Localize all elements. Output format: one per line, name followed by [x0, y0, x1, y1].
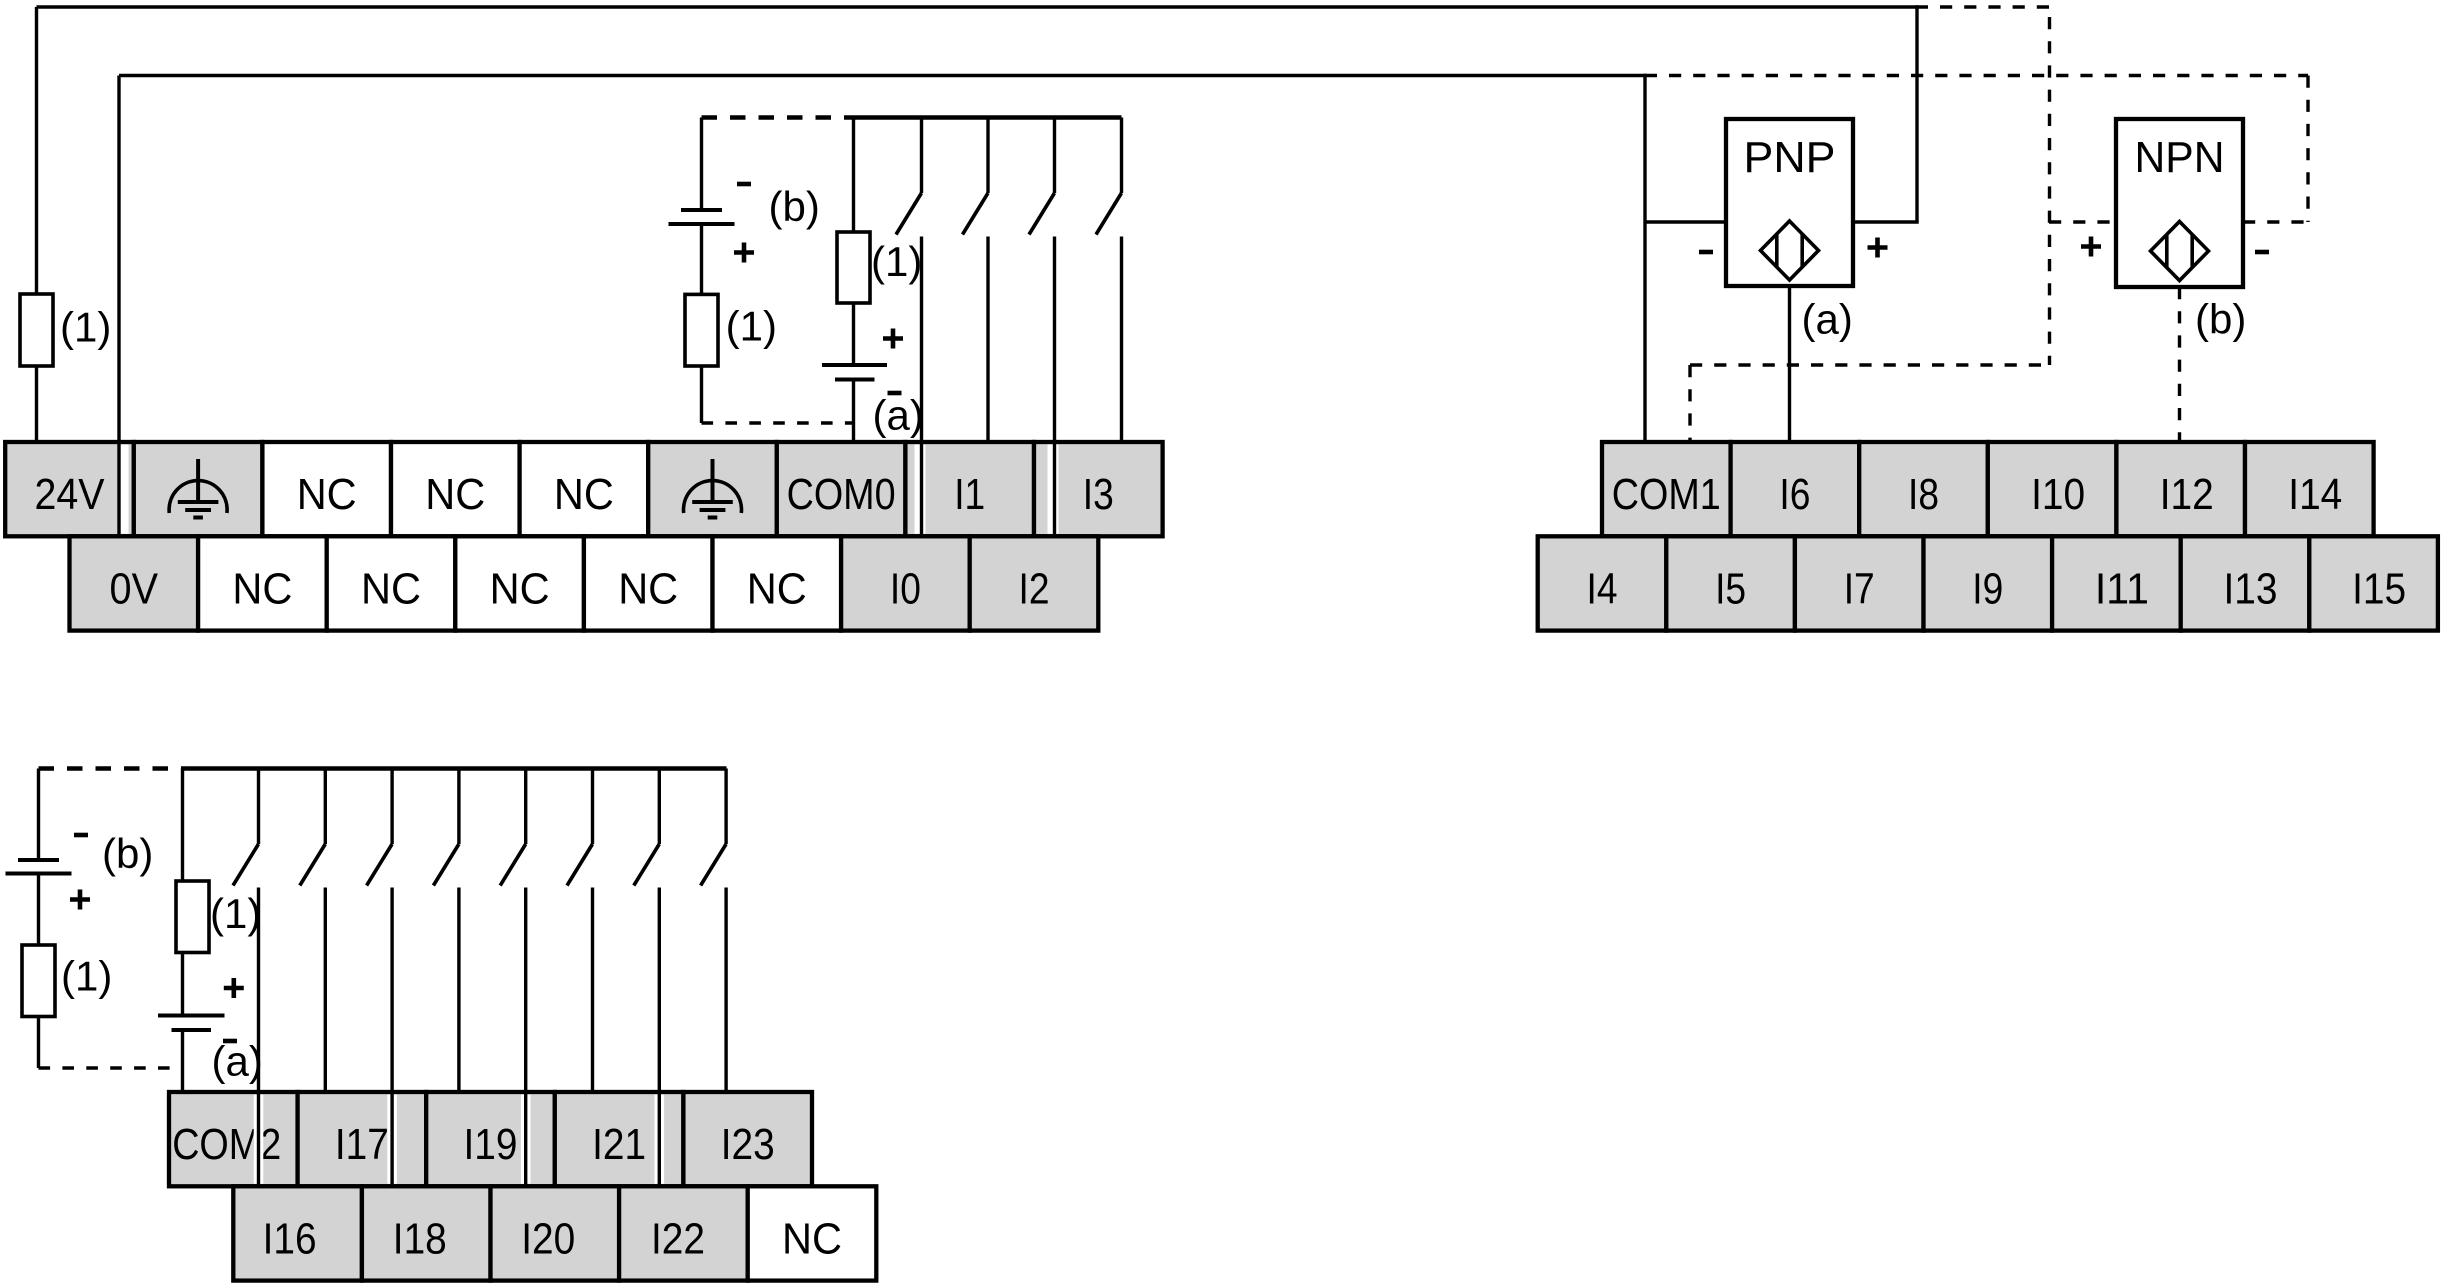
svg-text:NC: NC — [747, 565, 807, 613]
svg-text:I20: I20 — [521, 1216, 575, 1264]
svg-text:0V: 0V — [110, 565, 159, 613]
svg-text:I14: I14 — [2288, 471, 2342, 519]
svg-text:(a): (a) — [1802, 296, 1853, 343]
svg-text:(1): (1) — [726, 303, 777, 350]
svg-text:I21: I21 — [592, 1121, 646, 1169]
svg-text:I22: I22 — [651, 1216, 705, 1264]
svg-text:PNP: PNP — [1744, 133, 1836, 182]
svg-text:I13: I13 — [2224, 565, 2278, 613]
svg-text:NC: NC — [232, 565, 292, 613]
svg-text:NC: NC — [782, 1216, 842, 1264]
svg-text:I2: I2 — [1019, 565, 1050, 613]
svg-text:I3: I3 — [1083, 471, 1114, 519]
svg-text:COM0: COM0 — [787, 471, 896, 519]
svg-text:I4: I4 — [1587, 565, 1618, 613]
svg-text:I23: I23 — [721, 1121, 775, 1169]
svg-text:NC: NC — [361, 565, 421, 613]
svg-text:COM1: COM1 — [1612, 471, 1721, 519]
svg-text:(b): (b) — [102, 830, 153, 877]
svg-text:I18: I18 — [393, 1216, 447, 1264]
svg-text:I7: I7 — [1844, 565, 1875, 613]
svg-text:I19: I19 — [464, 1121, 518, 1169]
svg-text:NPN: NPN — [2135, 133, 2225, 182]
svg-text:I1: I1 — [954, 471, 985, 519]
svg-text:I9: I9 — [1972, 565, 2003, 613]
svg-text:(1): (1) — [61, 953, 112, 1000]
svg-text:(a): (a) — [212, 1038, 263, 1085]
svg-text:NC: NC — [490, 565, 550, 613]
svg-text:(1): (1) — [60, 303, 111, 350]
svg-text:I15: I15 — [2352, 565, 2406, 613]
svg-text:NC: NC — [554, 471, 614, 519]
svg-text:NC: NC — [425, 471, 485, 519]
svg-text:NC: NC — [297, 471, 357, 519]
svg-text:I10: I10 — [2031, 471, 2085, 519]
svg-text:I16: I16 — [263, 1216, 317, 1264]
svg-text:(1): (1) — [210, 890, 261, 937]
svg-text:NC: NC — [618, 565, 678, 613]
svg-text:I12: I12 — [2160, 471, 2214, 519]
svg-text:(b): (b) — [769, 183, 820, 230]
svg-text:I17: I17 — [335, 1121, 389, 1169]
svg-text:I5: I5 — [1715, 565, 1746, 613]
svg-text:24V: 24V — [35, 471, 105, 519]
svg-text:I8: I8 — [1908, 471, 1939, 519]
svg-text:COM2: COM2 — [172, 1121, 281, 1169]
svg-text:I6: I6 — [1779, 471, 1810, 519]
svg-text:(a): (a) — [873, 391, 924, 438]
svg-text:I11: I11 — [2095, 565, 2149, 613]
svg-text:I0: I0 — [890, 565, 921, 613]
svg-text:(b): (b) — [2195, 296, 2246, 343]
svg-text:(1): (1) — [871, 238, 922, 285]
